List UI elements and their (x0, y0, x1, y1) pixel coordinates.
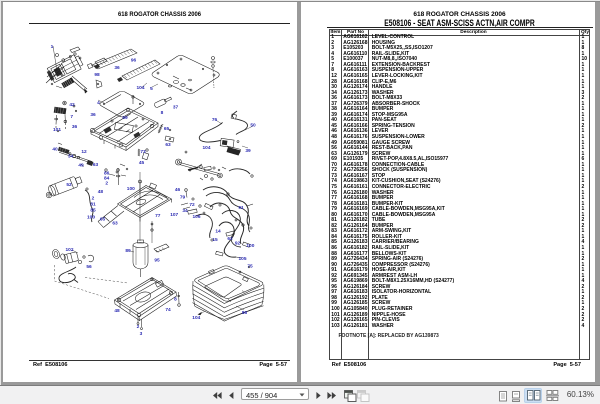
svg-text:100: 100 (87, 214, 95, 220)
svg-text:92: 92 (235, 241, 241, 247)
svg-text:85: 85 (90, 207, 96, 213)
svg-text:12: 12 (81, 149, 87, 155)
svg-text:46: 46 (175, 187, 181, 193)
svg-text:34: 34 (68, 154, 74, 160)
svg-text:8: 8 (174, 296, 177, 302)
svg-text:36: 36 (72, 124, 78, 130)
svg-text:101: 101 (53, 127, 61, 133)
svg-text:65: 65 (100, 216, 106, 222)
svg-text:37: 37 (173, 105, 179, 111)
svg-text:62: 62 (227, 236, 233, 242)
svg-text:65: 65 (164, 126, 170, 132)
svg-text:36: 36 (114, 65, 120, 71)
svg-text:34: 34 (182, 208, 188, 214)
svg-text:56: 56 (86, 264, 92, 270)
svg-text:102: 102 (65, 247, 73, 253)
svg-text:5: 5 (150, 86, 153, 92)
svg-text:107: 107 (170, 212, 178, 218)
svg-text:39: 39 (245, 148, 251, 154)
svg-text:104: 104 (202, 145, 210, 151)
svg-text:63: 63 (112, 221, 118, 227)
svg-text:48: 48 (98, 189, 104, 195)
svg-text:14: 14 (215, 229, 221, 235)
svg-text:52: 52 (66, 182, 72, 188)
svg-text:100: 100 (246, 243, 254, 249)
svg-text:63: 63 (165, 142, 171, 148)
svg-text:96: 96 (131, 58, 137, 64)
svg-text:2: 2 (92, 196, 95, 202)
svg-text:76: 76 (212, 117, 218, 123)
svg-text:45: 45 (139, 160, 145, 166)
svg-text:104: 104 (136, 85, 144, 91)
svg-text:105: 105 (238, 256, 246, 262)
svg-text:89: 89 (125, 248, 131, 254)
svg-text:2: 2 (137, 324, 140, 330)
svg-text:69: 69 (122, 115, 128, 121)
svg-text:8: 8 (161, 110, 164, 116)
svg-text:104: 104 (192, 315, 200, 321)
svg-text:72: 72 (189, 202, 195, 208)
svg-text:42: 42 (69, 102, 75, 108)
svg-text:77: 77 (155, 213, 161, 219)
svg-text:100: 100 (127, 186, 135, 192)
svg-text:36: 36 (90, 112, 96, 118)
svg-text:81: 81 (90, 201, 96, 207)
svg-text:40: 40 (52, 147, 58, 153)
svg-text:49: 49 (78, 163, 84, 169)
svg-text:4: 4 (97, 100, 100, 106)
svg-text:7: 7 (70, 114, 73, 120)
svg-text:15: 15 (212, 237, 218, 243)
svg-text:79: 79 (180, 194, 186, 200)
svg-text:95: 95 (154, 258, 160, 264)
svg-text:1: 1 (51, 44, 54, 50)
svg-text:73: 73 (140, 149, 146, 155)
svg-text:48: 48 (114, 308, 120, 314)
svg-text:75: 75 (247, 264, 253, 270)
svg-text:63: 63 (93, 162, 99, 168)
svg-text:106: 106 (192, 214, 200, 220)
svg-text:2: 2 (105, 181, 108, 187)
svg-text:86: 86 (242, 310, 248, 316)
svg-text:74: 74 (165, 307, 171, 313)
svg-text:3: 3 (140, 331, 143, 337)
svg-text:98: 98 (94, 72, 100, 78)
svg-text:50: 50 (250, 123, 256, 129)
svg-text:91: 91 (238, 205, 244, 211)
